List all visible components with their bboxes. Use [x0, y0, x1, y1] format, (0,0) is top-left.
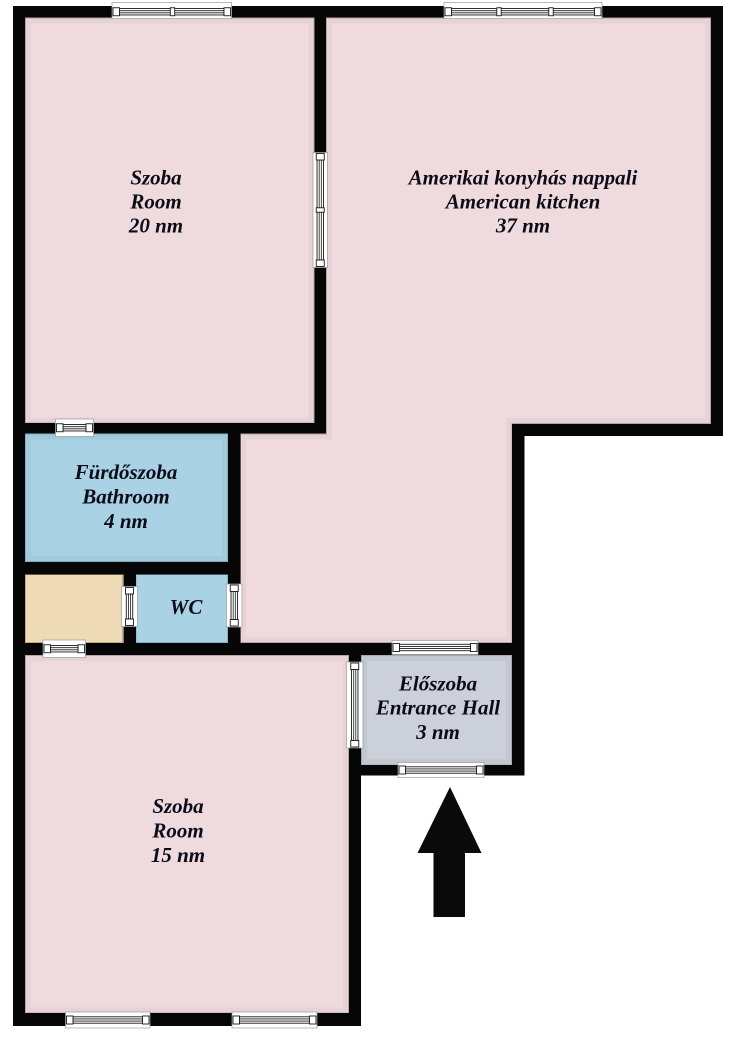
- svg-text:20 nm: 20 nm: [128, 214, 183, 238]
- svg-text:3 nm: 3 nm: [415, 720, 460, 744]
- svg-text:Szoba: Szoba: [152, 794, 203, 818]
- svg-text:15 nm: 15 nm: [151, 843, 205, 867]
- svg-text:Room: Room: [151, 819, 203, 843]
- svg-text:37 nm: 37 nm: [495, 214, 550, 238]
- svg-text:American kitchen: American kitchen: [444, 190, 601, 214]
- svg-text:4 nm: 4 nm: [103, 509, 148, 533]
- svg-text:Bathroom: Bathroom: [81, 485, 170, 509]
- svg-text:Fürdőszoba: Fürdőszoba: [74, 460, 178, 484]
- svg-text:Room: Room: [129, 190, 181, 214]
- svg-text:Előszoba: Előszoba: [398, 672, 477, 696]
- svg-text:Szoba: Szoba: [130, 166, 181, 190]
- svg-text:WC: WC: [170, 595, 204, 619]
- svg-text:Amerikai konyhás nappali: Amerikai konyhás nappali: [407, 166, 638, 190]
- svg-text:Entrance Hall: Entrance Hall: [375, 696, 500, 720]
